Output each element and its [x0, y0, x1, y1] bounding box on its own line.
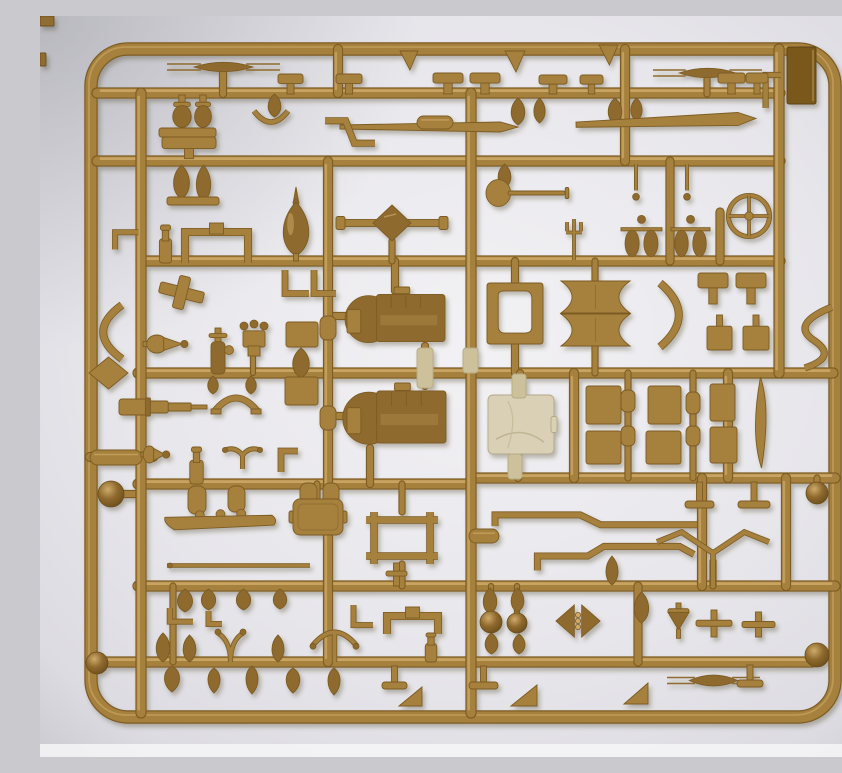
sprue-part-panel [787, 47, 816, 104]
sprue-part-gate [463, 348, 478, 373]
sprue-part-capsule [469, 529, 499, 543]
sprue-part-box [286, 322, 318, 347]
sprue-part-canvas [488, 395, 557, 454]
sprue-part-box [586, 431, 621, 464]
sprue-part-satchel [289, 499, 347, 535]
sprue-part-capsule [90, 450, 142, 465]
sprue-part-barrel [686, 426, 700, 446]
sprue-part-box [586, 386, 621, 424]
sprue-part-scrap [40, 53, 46, 66]
runner-horizontal [102, 660, 812, 662]
runner-horizontal [97, 159, 780, 161]
sprue-part-wheel [729, 196, 770, 237]
sprue-part-barrel [686, 392, 700, 414]
sprue-part-barrel [621, 426, 635, 446]
runner-vertical [623, 49, 625, 161]
sprue-part-gate [417, 348, 433, 388]
molded-ball [86, 652, 108, 674]
molded-ball [507, 613, 527, 633]
molded-ball [805, 643, 829, 667]
sprue-part-bar [167, 197, 219, 205]
sprue-part-gate [512, 374, 526, 398]
molded-ball [98, 481, 124, 507]
runner-horizontal [138, 584, 835, 586]
sprue-part-box [285, 377, 318, 405]
runner-vertical [572, 373, 574, 478]
sprue-part-scrap [40, 16, 54, 26]
runner-vertical [777, 49, 779, 373]
runner-horizontal [141, 259, 780, 261]
sprue-part-barrel [621, 390, 635, 412]
sprue-part-capsule [417, 116, 453, 129]
runner-vertical [336, 49, 338, 93]
sprue-photo-svg [40, 16, 842, 757]
runner-vertical [469, 93, 471, 713]
runner-vertical [784, 478, 786, 586]
sprue-part-barrel [228, 486, 245, 512]
runner-horizontal [97, 91, 780, 93]
sprue-part-barrel [188, 486, 206, 514]
sprue-part-bottle [425, 633, 437, 662]
sprue-part-thinrod [167, 563, 310, 568]
sprue-part-trapbox [710, 384, 735, 421]
sprue-part-gate [508, 454, 522, 479]
sprue-part-trapbox [710, 427, 737, 463]
sprue-part-box [646, 431, 681, 464]
sprue-part-box [648, 386, 681, 424]
photo-canvas [40, 16, 842, 757]
runner-horizontal [471, 476, 835, 478]
molded-ball [806, 482, 828, 504]
sprue-part-barrel [320, 316, 336, 340]
sprue-part-bar [159, 128, 216, 137]
molded-ball [480, 611, 502, 633]
sprue-part-barrel [320, 406, 336, 430]
